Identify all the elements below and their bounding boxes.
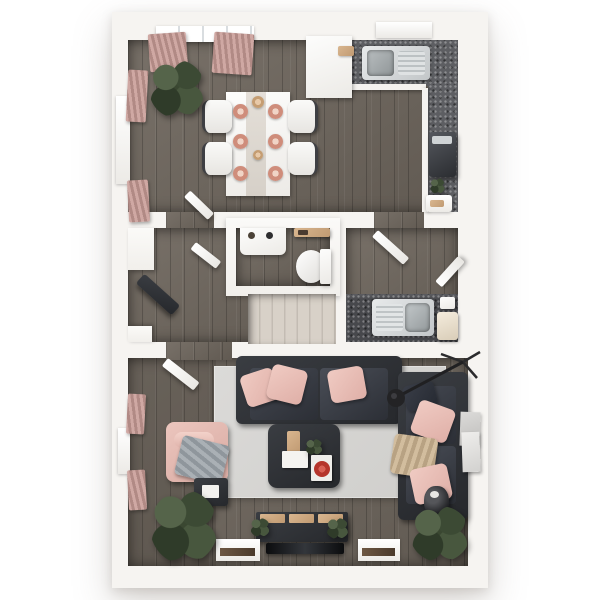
kitchen-counter-front-edge bbox=[348, 84, 426, 90]
centrepiece bbox=[253, 150, 263, 160]
small-appliance bbox=[440, 297, 455, 309]
staircase bbox=[248, 294, 336, 344]
sink-basin bbox=[367, 50, 394, 76]
console-plant-icon bbox=[326, 518, 349, 539]
oven-icon bbox=[429, 132, 456, 177]
window-frame bbox=[362, 548, 395, 556]
dining-chair bbox=[288, 142, 318, 175]
small-plant-icon bbox=[430, 178, 445, 194]
tv-screen bbox=[266, 543, 344, 554]
dining-chair bbox=[202, 142, 232, 175]
curtain bbox=[126, 70, 149, 123]
window-frame bbox=[220, 548, 255, 556]
corner-plant-icon bbox=[149, 60, 205, 118]
curtain bbox=[127, 470, 147, 511]
peninsula-board bbox=[338, 46, 354, 56]
table-book bbox=[287, 431, 300, 453]
basin-accessory bbox=[266, 232, 273, 239]
doorway-floor bbox=[166, 342, 232, 360]
window-sill bbox=[216, 539, 260, 561]
sink-basin bbox=[405, 303, 430, 332]
shelf-item bbox=[298, 230, 308, 235]
wall-recess bbox=[128, 326, 152, 342]
place-setting bbox=[268, 134, 283, 149]
basin-accessory bbox=[248, 232, 255, 239]
coffee-table bbox=[268, 424, 340, 488]
floor-plan-render bbox=[0, 0, 600, 600]
curtain bbox=[212, 32, 255, 76]
magazine bbox=[202, 485, 219, 498]
washbasin-icon bbox=[240, 228, 286, 255]
kitchen-sink-icon bbox=[362, 46, 430, 80]
sink-drainer bbox=[398, 51, 425, 75]
sink-drainer bbox=[376, 304, 403, 331]
pink-pillow bbox=[326, 365, 367, 404]
wall-art-frame bbox=[461, 432, 480, 473]
table-plant-icon bbox=[305, 439, 323, 455]
vase-detail bbox=[430, 491, 439, 498]
chopping-board-handle bbox=[430, 200, 444, 207]
place-setting bbox=[268, 166, 283, 181]
wc-shelf bbox=[294, 228, 330, 237]
place-setting bbox=[233, 104, 248, 119]
console-drawer bbox=[289, 514, 314, 523]
kitchen-window bbox=[376, 22, 432, 38]
place-setting bbox=[233, 166, 248, 181]
large-plant-icon bbox=[410, 506, 470, 562]
toilet-cistern bbox=[320, 249, 331, 284]
chopping-board bbox=[426, 195, 452, 212]
curtain bbox=[126, 394, 146, 435]
dining-chair bbox=[202, 100, 232, 133]
curtain bbox=[127, 179, 150, 222]
window-sill bbox=[118, 428, 130, 474]
red-bowl bbox=[314, 461, 330, 477]
table-tray bbox=[282, 451, 308, 468]
dining-chair bbox=[288, 100, 318, 133]
wall-recess bbox=[128, 228, 154, 270]
floor-lamp-icon bbox=[383, 348, 483, 410]
centrepiece bbox=[252, 96, 264, 108]
large-plant-icon bbox=[150, 490, 218, 564]
window-sill bbox=[358, 539, 400, 561]
kitchen-counter-right-edge bbox=[422, 88, 428, 212]
utility-sink-icon bbox=[372, 299, 434, 336]
place-setting bbox=[268, 104, 283, 119]
console-plant-icon bbox=[250, 518, 270, 537]
small-appliance bbox=[437, 312, 458, 340]
place-setting bbox=[233, 134, 248, 149]
oven-handle bbox=[432, 136, 452, 144]
